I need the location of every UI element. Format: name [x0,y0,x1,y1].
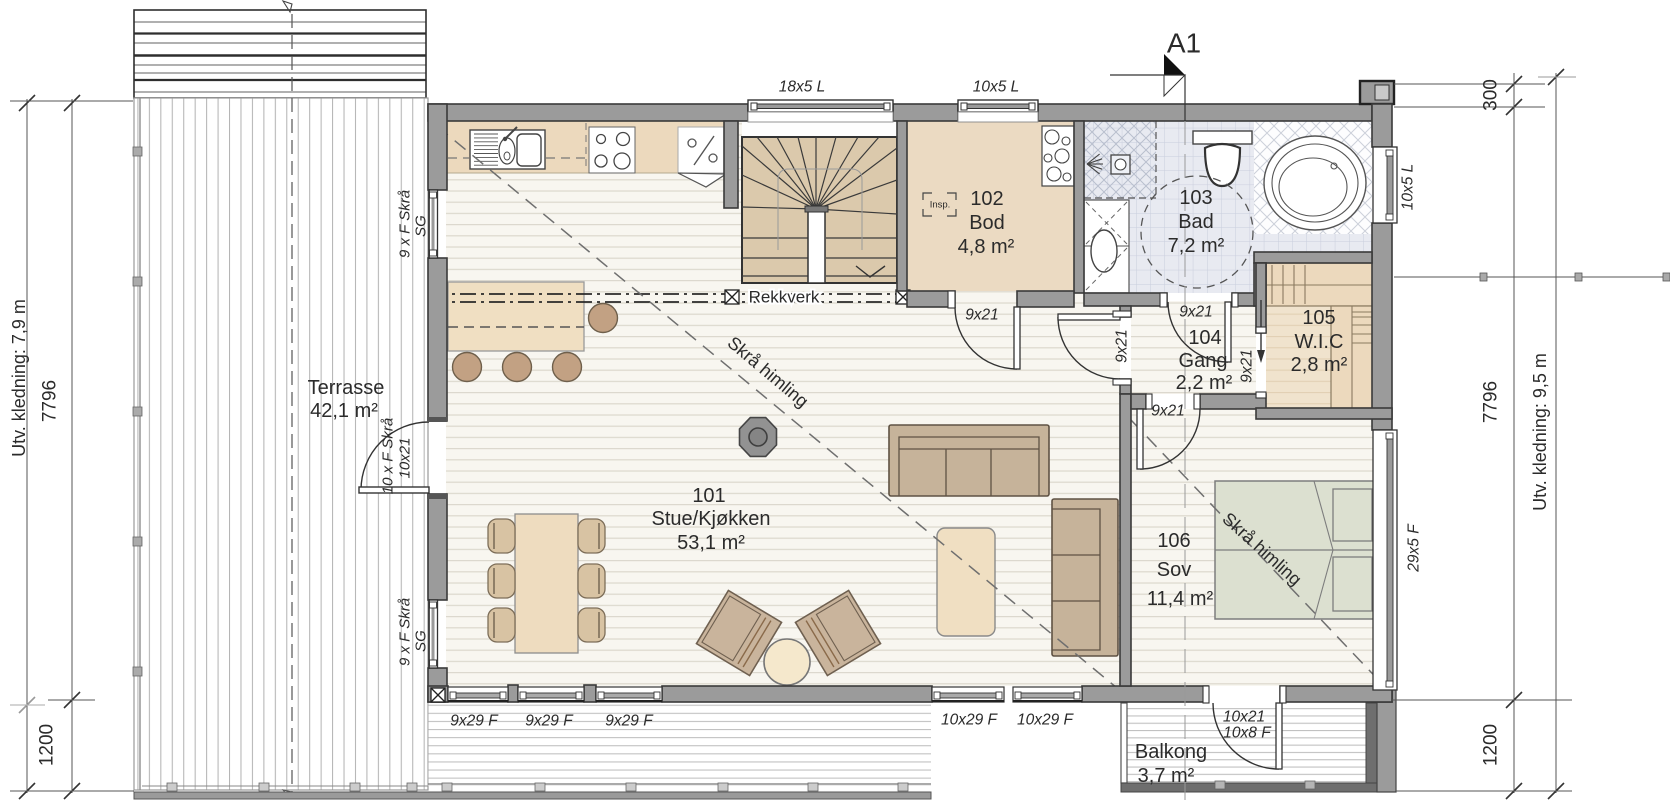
svg-text:Terrasse: Terrasse [308,377,385,399]
svg-text:9x21: 9x21 [1114,329,1131,363]
svg-text:A1: A1 [1167,28,1201,59]
svg-text:10x21: 10x21 [1223,709,1265,726]
svg-text:101: 101 [692,485,725,507]
svg-text:1200: 1200 [37,724,58,766]
svg-text:SG: SG [413,215,430,237]
svg-text:7,2 m²: 7,2 m² [1168,235,1225,257]
svg-text:10x5 L: 10x5 L [1400,164,1417,211]
svg-text:42,1 m²: 42,1 m² [310,400,378,422]
svg-text:7796: 7796 [40,380,61,422]
svg-text:W.I.C: W.I.C [1295,331,1344,353]
svg-text:103: 103 [1179,187,1212,209]
svg-text:106: 106 [1157,530,1190,552]
svg-text:10x29 F: 10x29 F [941,712,999,729]
svg-text:Rekkverk: Rekkverk [749,288,820,307]
svg-text:SG: SG [413,630,430,652]
svg-text:Utv. kledning: 9,5 m: Utv. kledning: 9,5 m [1530,353,1550,511]
svg-text:29x5 F: 29x5 F [1406,523,1423,573]
svg-text:104: 104 [1188,327,1221,349]
svg-text:Balkong: Balkong [1135,741,1207,763]
svg-text:9 x F Skrå: 9 x F Skrå [397,598,414,666]
svg-text:53,1 m²: 53,1 m² [677,532,745,554]
svg-text:4,8 m²: 4,8 m² [958,236,1015,258]
svg-text:1200: 1200 [1481,724,1502,766]
svg-text:Insp.: Insp. [930,200,951,211]
svg-text:Stue/Kjøkken: Stue/Kjøkken [652,508,771,530]
svg-text:10x5 L: 10x5 L [973,79,1020,96]
svg-text:9 x F Skrå: 9 x F Skrå [397,190,414,258]
svg-text:102: 102 [970,188,1003,210]
svg-text:3,7 m²: 3,7 m² [1138,765,1195,787]
svg-text:Sov: Sov [1157,559,1191,581]
svg-text:9x21: 9x21 [1179,304,1213,321]
svg-text:9x21: 9x21 [965,307,999,324]
svg-text:7796: 7796 [1481,381,1502,423]
svg-text:9x29 F: 9x29 F [450,713,499,730]
svg-text:9x29 F: 9x29 F [605,713,654,730]
svg-text:9x21: 9x21 [1151,403,1185,420]
svg-text:Gang: Gang [1179,350,1228,372]
svg-text:300: 300 [1481,79,1502,111]
svg-text:10 x F Skrå: 10 x F Skrå [380,418,397,494]
svg-text:9x29 F: 9x29 F [525,713,574,730]
svg-text:Utv. kledning: 7,9 m: Utv. kledning: 7,9 m [9,299,29,457]
svg-text:9x21: 9x21 [1239,349,1256,383]
svg-text:Bod: Bod [969,212,1005,234]
svg-text:2,8 m²: 2,8 m² [1291,354,1348,376]
svg-text:18x5 L: 18x5 L [779,79,826,96]
svg-text:10x29 F: 10x29 F [1017,712,1075,729]
svg-text:105: 105 [1302,307,1335,329]
svg-text:2,2 m²: 2,2 m² [1176,372,1233,394]
svg-text:11,4 m²: 11,4 m² [1147,588,1214,610]
svg-text:Bad: Bad [1178,211,1214,233]
svg-text:10x8 F: 10x8 F [1223,725,1272,742]
svg-text:10x21: 10x21 [397,438,414,479]
